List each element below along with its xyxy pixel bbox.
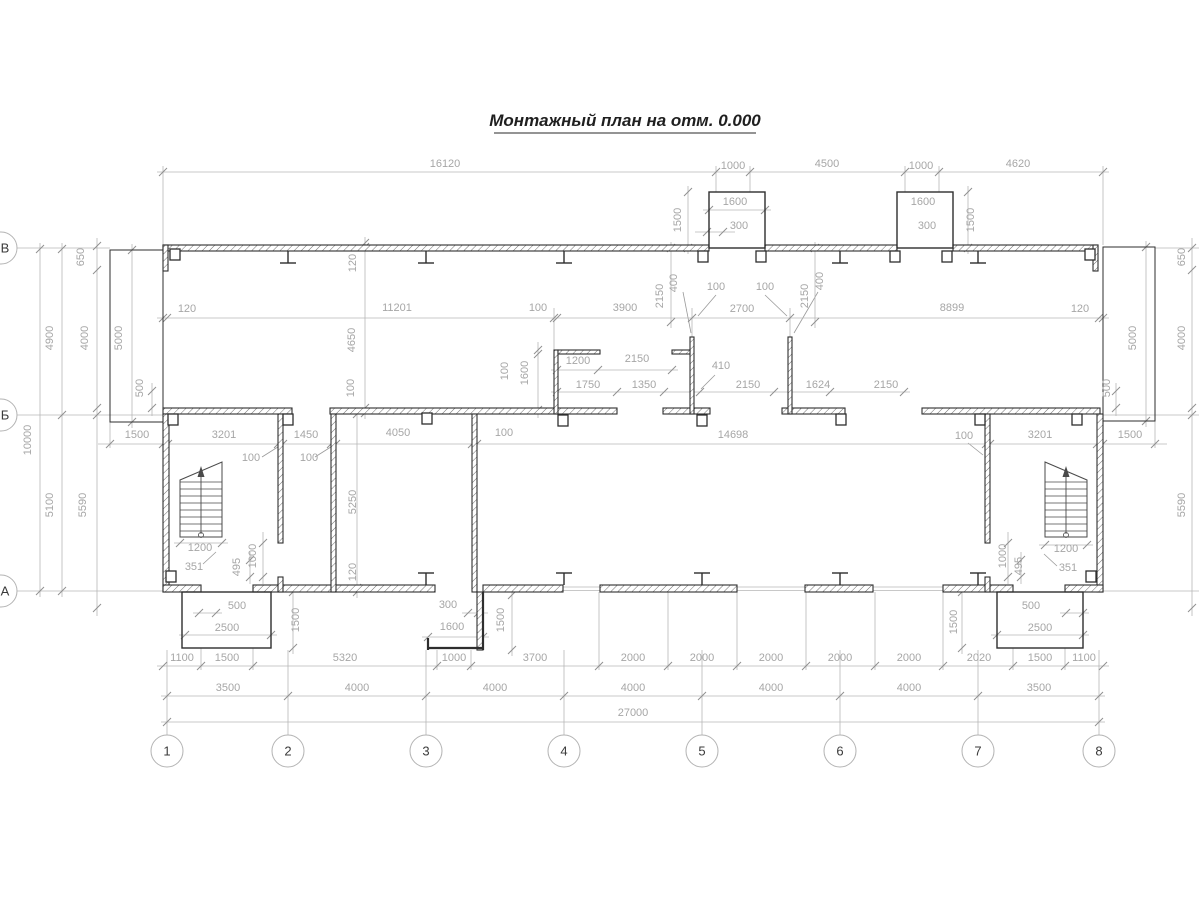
dim-label: 351 [1059, 562, 1077, 574]
grid-bubble-label: 1 [163, 744, 170, 759]
wall-segment [163, 245, 168, 271]
dim-label: 1200 [188, 542, 212, 554]
column-mark [422, 413, 432, 424]
dim-label: 2000 [897, 652, 921, 664]
grid-bubble-2: 2 [272, 735, 304, 767]
column-mark [1085, 249, 1095, 260]
dim-label: 4050 [386, 427, 410, 439]
dim-label: 3900 [613, 302, 637, 314]
dim-label: 4500 [815, 158, 839, 170]
dim-label: 495 [231, 558, 243, 576]
grid-bubble-4: 4 [548, 735, 580, 767]
dim-label: 100 [707, 281, 725, 293]
dim-label: 2000 [621, 652, 645, 664]
dim-label: 495 [1013, 557, 1025, 575]
column-mark [975, 414, 985, 425]
dim-label: 410 [712, 360, 730, 372]
dim-label: 1000 [909, 160, 933, 172]
drawing-title-group: Монтажный план на отм. 0.000 [489, 111, 761, 133]
wall-segment [672, 350, 690, 354]
grid-bubble-label: 6 [836, 744, 843, 759]
row-bubble-А: А [0, 575, 17, 607]
dim-label: 3500 [1027, 682, 1051, 694]
column-mark [1072, 414, 1082, 425]
grid-bubble-label: 8 [1095, 744, 1102, 759]
dim-label: 8899 [940, 302, 964, 314]
wall-segment [663, 408, 710, 414]
stair-flight [180, 462, 222, 538]
leader-line [1044, 554, 1057, 566]
dim-label: 650 [75, 248, 87, 266]
dim-label: 1624 [806, 379, 830, 391]
dimension-lines-layer [36, 168, 1196, 726]
structure-outline [182, 592, 271, 648]
wall-segment [472, 414, 477, 592]
row-bubble-label: А [1, 584, 10, 599]
wall-segment [985, 414, 990, 543]
dim-label: 1000 [442, 652, 466, 664]
dim-label: 2020 [967, 652, 991, 664]
wall-segment [278, 577, 283, 592]
dim-label: 500 [134, 379, 146, 397]
stair-direction-arrow-icon [1063, 466, 1070, 477]
column-mark [283, 414, 293, 425]
wall-segment [163, 408, 292, 414]
dim-label: 1000 [997, 544, 1009, 568]
dim-label: 5320 [333, 652, 357, 664]
dim-label: 4620 [1006, 158, 1030, 170]
leader-line [765, 295, 787, 316]
column-mark [836, 414, 846, 425]
row-bubble-Б: Б [0, 399, 17, 431]
dim-label: 1100 [1072, 652, 1096, 664]
dim-label: 2150 [625, 353, 649, 365]
dim-label: 27000 [618, 707, 649, 719]
dim-label: 500 [1022, 600, 1040, 612]
dim-label: 1600 [440, 621, 464, 633]
dim-label: 400 [668, 274, 680, 292]
column-mark [168, 414, 178, 425]
dim-label: 14698 [718, 429, 749, 441]
dim-label: 4000 [345, 682, 369, 694]
dim-label: 16120 [430, 158, 461, 170]
page-title: Монтажный план на отм. 0.000 [489, 111, 761, 130]
row-bubble-label: В [1, 241, 10, 256]
dim-label: 2000 [828, 652, 852, 664]
dim-label: 5100 [44, 493, 56, 517]
grid-bubble-label: 5 [698, 744, 705, 759]
dim-label: 400 [814, 272, 826, 290]
dim-label: 351 [185, 561, 203, 573]
leader-line [698, 295, 716, 316]
dim-label: 10000 [22, 425, 34, 456]
column-mark [558, 415, 568, 426]
wall-segment [765, 245, 897, 251]
grid-bubble-5: 5 [686, 735, 718, 767]
row-bubble-label: Б [1, 408, 10, 423]
dim-label: 1100 [170, 652, 194, 664]
dim-label: 100 [495, 427, 513, 439]
grid-bubble-label: 7 [974, 744, 981, 759]
wall-segment [278, 414, 283, 543]
dim-label: 1600 [911, 196, 935, 208]
wall-segment [985, 577, 990, 592]
dim-label: 100 [300, 452, 318, 464]
wall-segment [805, 585, 873, 592]
dim-label: 100 [345, 379, 357, 397]
dim-label: 4000 [1176, 326, 1188, 350]
dim-label: 11201 [382, 302, 412, 314]
stair-direction-arrow-icon [198, 466, 205, 477]
dim-label: 650 [1176, 248, 1188, 266]
dim-label: 1450 [294, 429, 318, 441]
dim-label: 3500 [216, 682, 240, 694]
dim-label: 2500 [215, 622, 239, 634]
wall-segment [953, 245, 1098, 251]
dim-label: 120 [178, 303, 196, 315]
wall-segment [483, 585, 563, 592]
dim-label: 1000 [247, 544, 259, 568]
wall-segment [163, 414, 169, 592]
grid-bubble-label: 3 [422, 744, 429, 759]
details-layer [166, 249, 1096, 585]
wall-segment [331, 414, 336, 592]
stairs-layer [180, 462, 1087, 538]
dim-label: 1500 [948, 610, 960, 634]
dim-label: 2150 [799, 284, 811, 308]
dim-label: 1200 [566, 355, 590, 367]
dim-label: 100 [955, 430, 973, 442]
grid-bubble-6: 6 [824, 735, 856, 767]
grid-bubble-7: 7 [962, 735, 994, 767]
dim-label: 2150 [736, 379, 760, 391]
wall-segment [1097, 414, 1103, 592]
dim-label: 4000 [79, 326, 91, 350]
dim-label: 2000 [759, 652, 783, 664]
dim-label: 100 [242, 452, 260, 464]
dim-label: 4000 [621, 682, 645, 694]
dim-label: 1750 [576, 379, 600, 391]
wall-segment [600, 585, 737, 592]
dim-label: 1350 [632, 379, 656, 391]
dim-label: 1500 [495, 608, 507, 632]
dim-label: 1200 [1054, 543, 1078, 555]
dim-label: 4000 [483, 682, 507, 694]
dim-label: 1600 [723, 196, 747, 208]
dim-label: 120 [347, 563, 359, 581]
dim-label: 1000 [721, 160, 745, 172]
drawing-page: Монтажный план на отм. 0.000 16120100045… [0, 0, 1200, 900]
dim-label: 300 [918, 220, 936, 232]
wall-segment [330, 408, 617, 414]
dim-label: 100 [756, 281, 774, 293]
wall-segment [558, 350, 600, 354]
dim-label: 1500 [125, 429, 149, 441]
dim-label: 100 [529, 302, 547, 314]
dim-label: 1500 [965, 208, 977, 232]
dim-label: 120 [347, 254, 359, 272]
dim-label: 4000 [897, 682, 921, 694]
dim-label: 1600 [519, 361, 531, 385]
column-mark [170, 249, 180, 260]
stair-flight [1045, 462, 1087, 538]
wall-segment [943, 585, 1013, 592]
dim-label: 5000 [1127, 326, 1139, 350]
wall-segment [1065, 585, 1103, 592]
dim-label: 500 [228, 600, 246, 612]
dim-label: 4000 [759, 682, 783, 694]
dim-label: 3201 [1028, 429, 1052, 441]
leader-line [683, 292, 691, 333]
dim-label: 5590 [77, 493, 89, 517]
dim-label: 3201 [212, 429, 236, 441]
dim-label: 3700 [523, 652, 547, 664]
dim-label: 5590 [1176, 493, 1188, 517]
grid-bubble-3: 3 [410, 735, 442, 767]
wall-segment [690, 337, 694, 414]
dim-label: 4650 [346, 328, 358, 352]
column-mark [942, 251, 952, 262]
dim-label: 1500 [290, 608, 302, 632]
column-mark [1086, 571, 1096, 582]
dim-label: 1500 [1118, 429, 1142, 441]
wall-segment [788, 337, 792, 414]
grid-bubble-1: 1 [151, 735, 183, 767]
dim-label: 500 [1101, 379, 1113, 397]
grid-bubble-8: 8 [1083, 735, 1115, 767]
leader-line [701, 375, 715, 389]
dim-label: 100 [499, 362, 511, 380]
dim-label: 2500 [1028, 622, 1052, 634]
dim-label: 4900 [44, 326, 56, 350]
grid-bubble-label: 4 [560, 744, 567, 759]
dim-label: 2150 [874, 379, 898, 391]
walls-layer [110, 192, 1155, 650]
dim-label: 2700 [730, 303, 754, 315]
dim-label: 5250 [347, 490, 359, 514]
dim-label: 120 [1071, 303, 1089, 315]
column-mark [698, 251, 708, 262]
dim-label: 1500 [1028, 652, 1052, 664]
dim-label: 1500 [215, 652, 239, 664]
wall-segment [163, 585, 201, 592]
dim-label: 2150 [654, 284, 666, 308]
wall-segment [554, 350, 558, 414]
dim-label: 2000 [690, 652, 714, 664]
grid-bubble-label: 2 [284, 744, 291, 759]
dim-label: 300 [439, 599, 457, 611]
row-bubble-В: В [0, 232, 17, 264]
wall-segment [922, 408, 1100, 414]
column-mark [697, 415, 707, 426]
dim-label: 5000 [113, 326, 125, 350]
column-mark [890, 251, 900, 262]
column-mark [756, 251, 766, 262]
dim-label: 300 [730, 220, 748, 232]
column-mark [166, 571, 176, 582]
wall-segment [163, 245, 709, 251]
floor-plan-canvas: Монтажный план на отм. 0.000 16120100045… [0, 0, 1200, 900]
leader-line [968, 443, 983, 455]
dim-label: 1500 [672, 208, 684, 232]
